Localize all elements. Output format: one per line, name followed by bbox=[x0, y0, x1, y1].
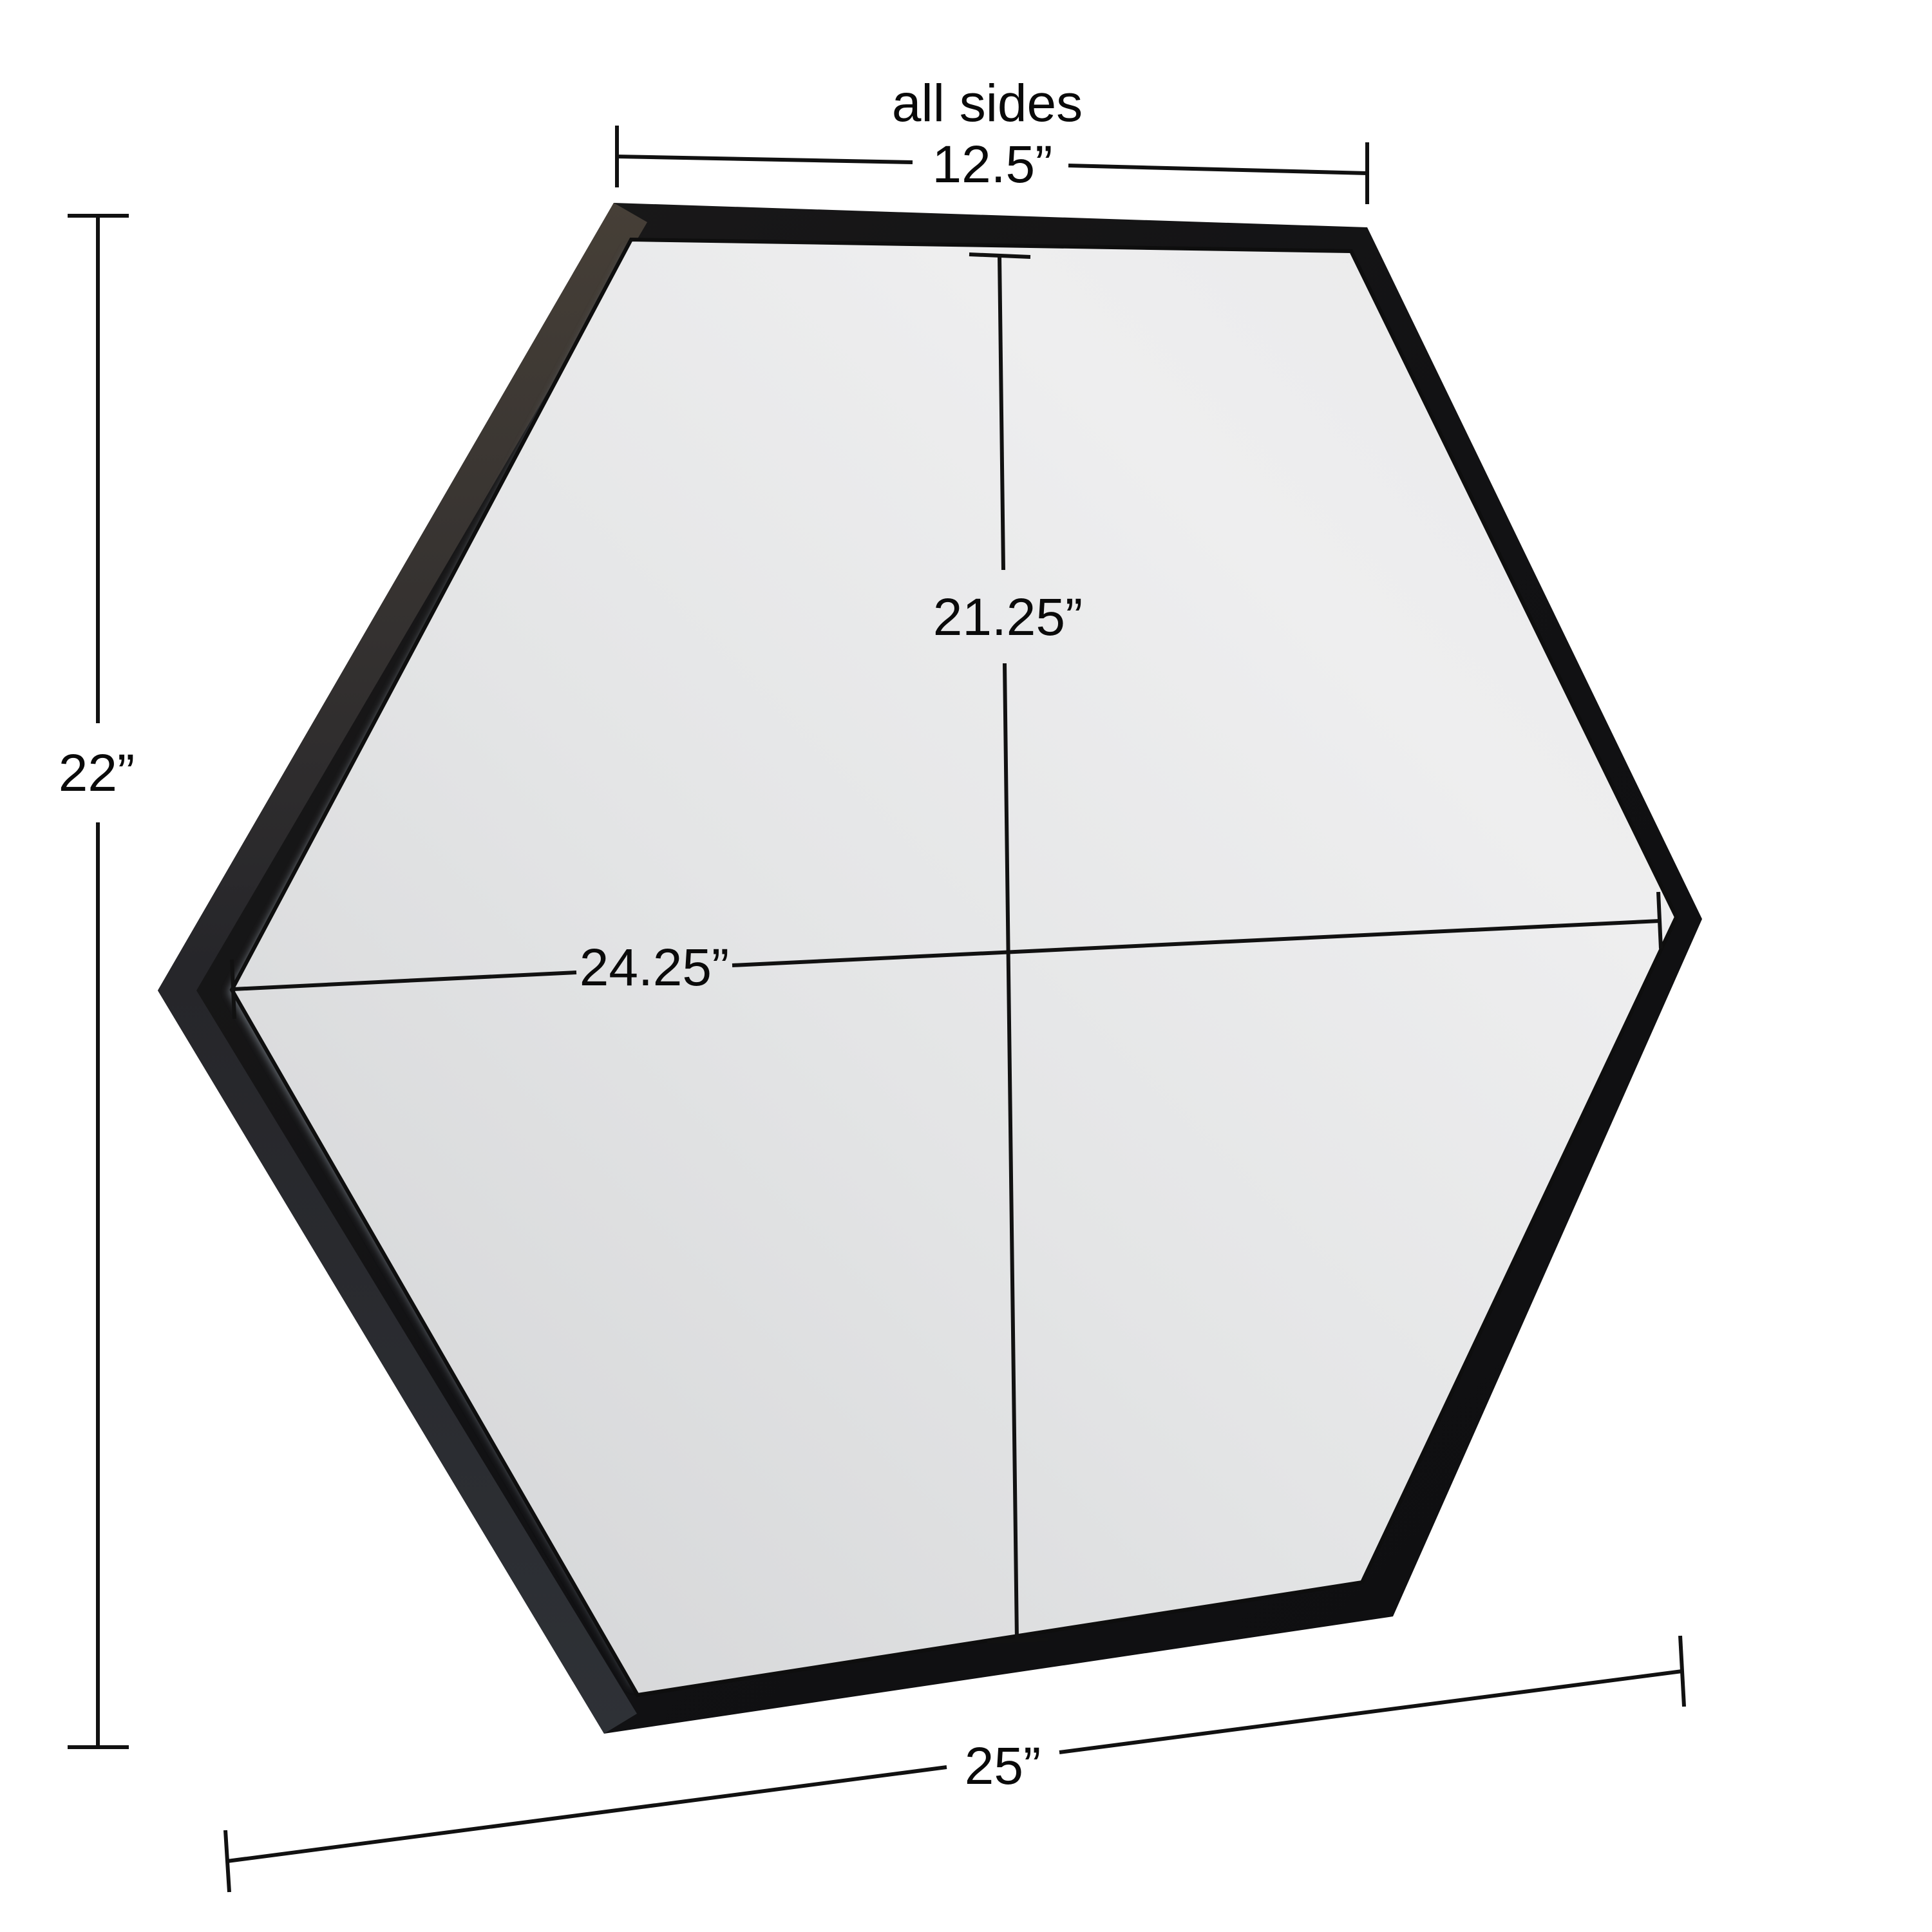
side-length-label: 12.5” bbox=[933, 135, 1053, 194]
inner-height-label: 21.25” bbox=[933, 588, 1083, 647]
hexagon-mirror-diagram-svg: all sides 12.5” 22” 25” 21.25” 24.25” bbox=[0, 0, 1932, 1932]
overall-height-label: 22” bbox=[59, 744, 135, 802]
inner-width-label: 24.25” bbox=[580, 938, 730, 997]
overall-width-label: 25” bbox=[965, 1737, 1041, 1795]
side-caption-label: all sides bbox=[892, 74, 1083, 133]
product-dimension-diagram: all sides 12.5” 22” 25” 21.25” 24.25” bbox=[0, 0, 1932, 1932]
